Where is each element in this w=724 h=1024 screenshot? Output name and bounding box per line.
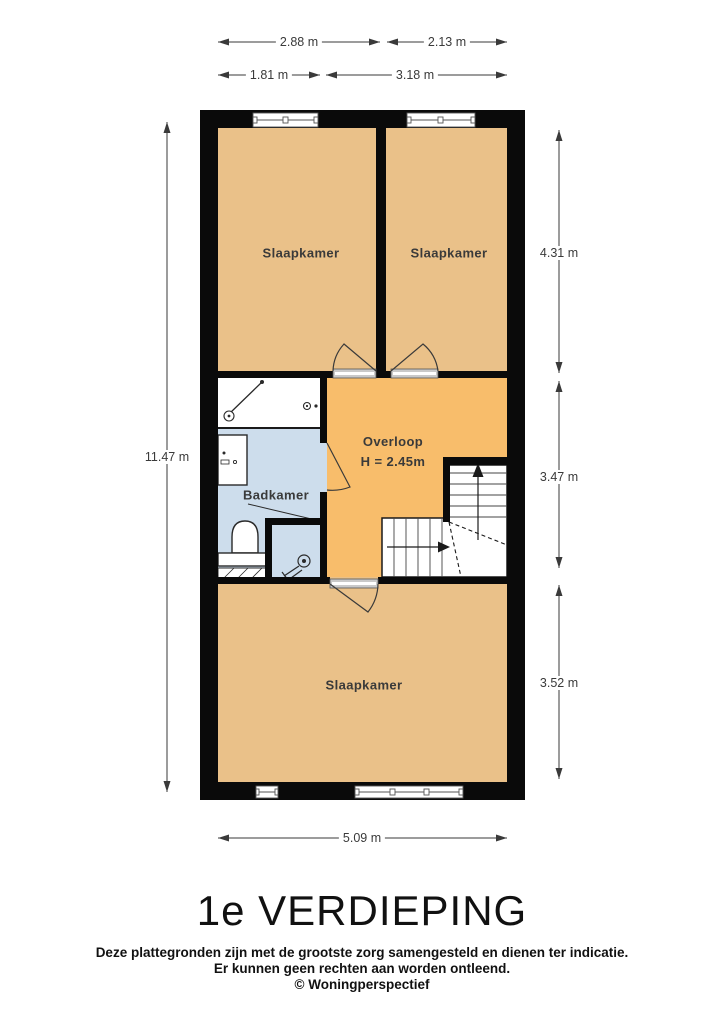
dimension-top-inner-right: 3.18 m <box>392 68 438 82</box>
wall-stair-left <box>443 457 450 522</box>
floorplan-drawing <box>0 0 724 1024</box>
room-label-landing: Overloop H = 2.45m <box>361 432 426 472</box>
wall-mid-bottom-right <box>378 577 507 584</box>
dimension-right-middle: 3.47 m <box>536 470 582 484</box>
window-top-right <box>407 113 475 127</box>
disclaimer: Deze plattegronden zijn met de grootste … <box>42 945 682 993</box>
wall-exterior-left <box>200 110 218 800</box>
room-label-bedroom-top-left: Slaapkamer <box>263 246 340 261</box>
bathroom-door-opening <box>320 443 327 492</box>
dimension-bottom-width: 5.09 m <box>339 831 385 845</box>
door-threshold-bedroom-right <box>391 369 438 378</box>
dimension-top-outer-left: 2.88 m <box>276 35 322 49</box>
dimension-right-bottom: 3.52 m <box>536 676 582 690</box>
wall-bathroom-lower <box>320 492 327 584</box>
floor-title: 1e VERDIEPING <box>197 887 527 935</box>
landing-name: Overloop <box>363 434 423 449</box>
door-threshold-bedroom-left <box>333 369 376 378</box>
wall-exterior-right <box>507 110 525 800</box>
wall-bedroom-divider <box>376 128 386 378</box>
room-label-bathroom: Badkamer <box>243 488 309 503</box>
wall-mid-top-left <box>218 371 333 378</box>
sink-cabinet-icon <box>218 435 247 485</box>
window-top-left <box>253 113 318 127</box>
room-label-bedroom-bottom: Slaapkamer <box>326 678 403 693</box>
wall-bathroom-upper <box>320 371 327 443</box>
wall-mid-top-center <box>376 371 391 378</box>
wall-mid-top-right <box>438 371 507 378</box>
dimension-top-outer-right: 2.13 m <box>424 35 470 49</box>
dimension-left-total: 11.47 m <box>141 450 193 464</box>
disclaimer-line3: © Woningperspectief <box>295 977 430 992</box>
wall-stair-top <box>443 457 507 465</box>
wall-exterior-top <box>200 110 525 128</box>
window-bottom-small <box>256 786 278 798</box>
wall-shower-nook-h <box>265 518 327 525</box>
room-label-bedroom-top-right: Slaapkamer <box>411 246 488 261</box>
landing-ceiling-height: H = 2.45m <box>361 454 426 469</box>
wall-mid-bottom-left <box>218 577 330 584</box>
floorplan-page: 2.88 m 2.13 m 1.81 m 3.18 m 11.47 m 4.31… <box>0 0 724 1024</box>
dimension-right-top: 4.31 m <box>536 246 582 260</box>
window-bottom-large <box>355 786 463 798</box>
dimension-top-inner-left: 1.81 m <box>246 68 292 82</box>
door-threshold-bedroom-bottom <box>330 579 378 588</box>
disclaimer-line1: Deze plattegronden zijn met de grootste … <box>96 945 629 960</box>
disclaimer-line2: Er kunnen geen rechten aan worden ontlee… <box>214 961 510 976</box>
wall-shower-nook-v <box>265 525 272 584</box>
